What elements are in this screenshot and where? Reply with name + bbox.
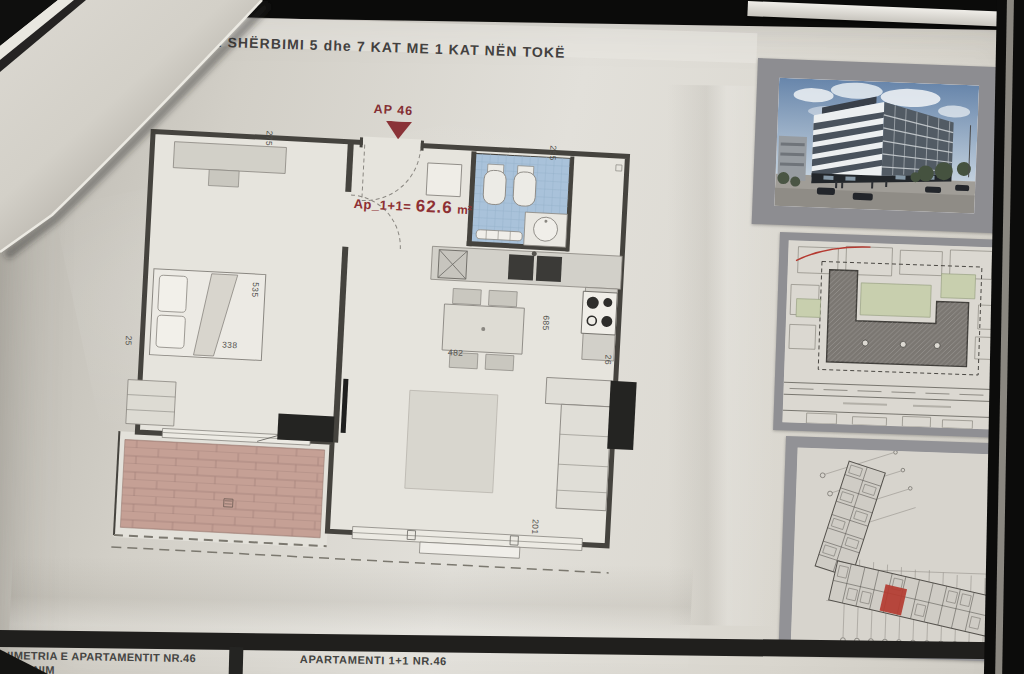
chair xyxy=(453,288,482,304)
page-edge-sliver xyxy=(747,1,1019,27)
stove xyxy=(581,291,617,335)
dimension-label: 255 xyxy=(548,145,557,161)
toilet xyxy=(483,170,507,205)
shaft-column xyxy=(607,381,637,450)
site-plan-panel xyxy=(773,232,1014,438)
footer-left-line1: ANIMETRIA E APARTAMENTIT NR.46 xyxy=(0,649,196,664)
towel-radiator xyxy=(476,230,522,241)
dimension-label: 201 xyxy=(531,519,540,535)
key-plan-image xyxy=(791,447,1012,650)
building-render-panel xyxy=(752,58,1002,233)
chair xyxy=(485,354,514,370)
dimension-label: 535 xyxy=(251,282,260,298)
dimension-label: 685 xyxy=(541,315,550,331)
green-area xyxy=(941,274,976,299)
fridge xyxy=(426,163,462,197)
terrace-deck-planks xyxy=(120,439,324,537)
dresser xyxy=(126,380,176,426)
kitchen-sink xyxy=(508,254,534,280)
pillow xyxy=(156,315,186,348)
dimension-label: 482 xyxy=(448,348,464,357)
chair xyxy=(488,290,517,306)
unit-marker: AP 46 xyxy=(373,102,413,118)
sofa-chaise xyxy=(545,377,612,406)
building-render-image xyxy=(774,78,979,214)
dimension-label: 26 xyxy=(604,354,613,365)
pillow xyxy=(158,275,188,312)
dimension-label: 338 xyxy=(222,340,238,349)
green-area xyxy=(796,299,821,318)
sofa xyxy=(556,404,611,510)
photographed-plan-sheet: DHE SHËRBIMI 5 dhe 7 KAT ME 1 KAT NËN TO… xyxy=(0,0,1024,674)
footer-divider xyxy=(229,647,244,674)
bidet xyxy=(513,171,537,206)
green-area xyxy=(860,283,931,317)
column xyxy=(277,413,334,442)
kitchen-sink xyxy=(536,256,562,282)
footer-center-text: APARTAMENTI 1+1 NR.46 xyxy=(300,653,447,667)
curled-page-corner xyxy=(0,0,340,280)
dimension-label: 25 xyxy=(124,335,133,346)
rug xyxy=(405,390,498,492)
site-plan-image xyxy=(782,240,1004,429)
